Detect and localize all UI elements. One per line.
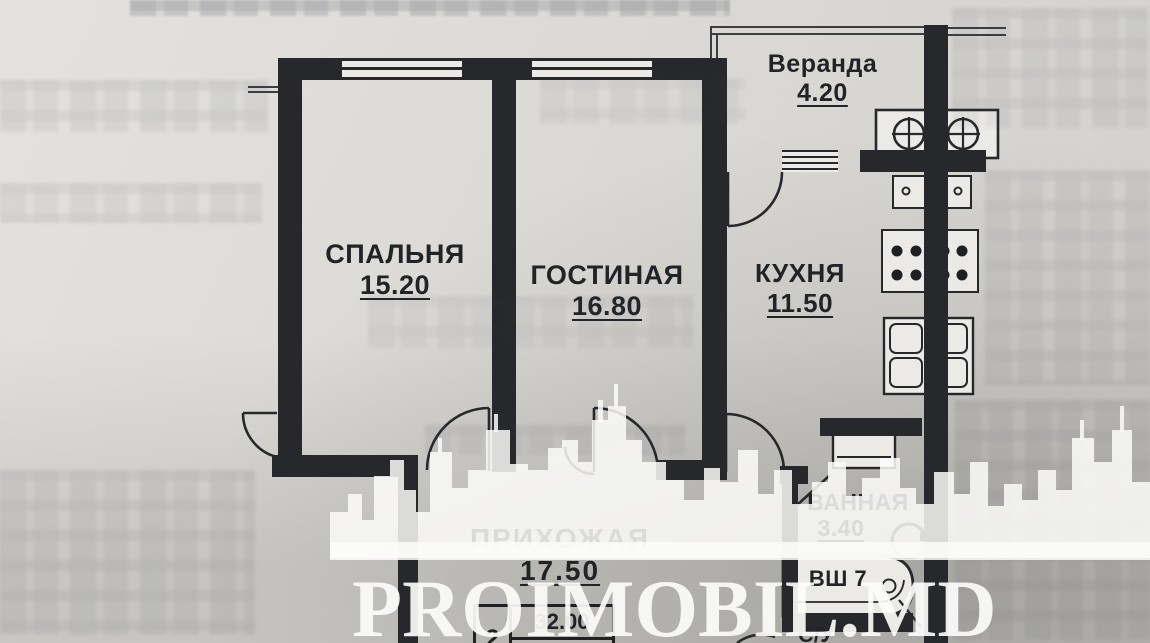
window-living <box>532 58 652 80</box>
room-name: СПАЛЬНЯ <box>315 239 475 270</box>
wall-neighbor-stub <box>948 150 986 172</box>
ghost-text-smudge <box>985 170 1150 385</box>
wall-partition-bedroom-living <box>492 78 516 472</box>
room-area: 4.20 <box>745 79 900 108</box>
ghost-text-smudge <box>130 0 730 16</box>
wall-top-pier <box>462 58 532 80</box>
wall-top-corner-right <box>652 58 727 80</box>
floor-plan-photo: Веранда 4.20 СПАЛЬНЯ 15.20 ГОСТИНАЯ 16.8… <box>0 0 1150 643</box>
room-name: ГОСТИНАЯ <box>527 260 687 291</box>
ghost-text-smudge <box>0 183 262 223</box>
wall-bath-top <box>820 418 922 436</box>
wall-kitchen-top <box>860 150 924 172</box>
window-kitchen-veranda <box>782 150 838 172</box>
window-bedroom <box>342 58 462 80</box>
room-label-bedroom: СПАЛЬНЯ 15.20 <box>315 239 475 301</box>
ghost-text-smudge <box>952 8 1148 128</box>
wall-bedroom-left <box>278 80 302 477</box>
ghost-text-smudge <box>0 80 268 132</box>
ghost-text-smudge <box>368 296 693 348</box>
door-arc-veranda <box>728 172 782 226</box>
room-name: Веранда <box>745 50 900 79</box>
ghost-text-smudge <box>540 78 745 124</box>
room-label-veranda: Веранда 4.20 <box>745 50 900 108</box>
ghost-text-smudge <box>0 470 255 635</box>
room-label-kitchen: КУХНЯ 11.50 <box>735 259 865 319</box>
wall-bedroom-bottom <box>272 455 402 477</box>
room-name: КУХНЯ <box>735 259 865 289</box>
room-area: 11.50 <box>735 289 865 319</box>
watermark-brand-text: PROIMOBIL.MD <box>352 562 1150 643</box>
wall-top-corner-left <box>278 58 342 80</box>
wall-living-right <box>702 80 727 480</box>
door-arc-bedroom <box>243 413 277 457</box>
